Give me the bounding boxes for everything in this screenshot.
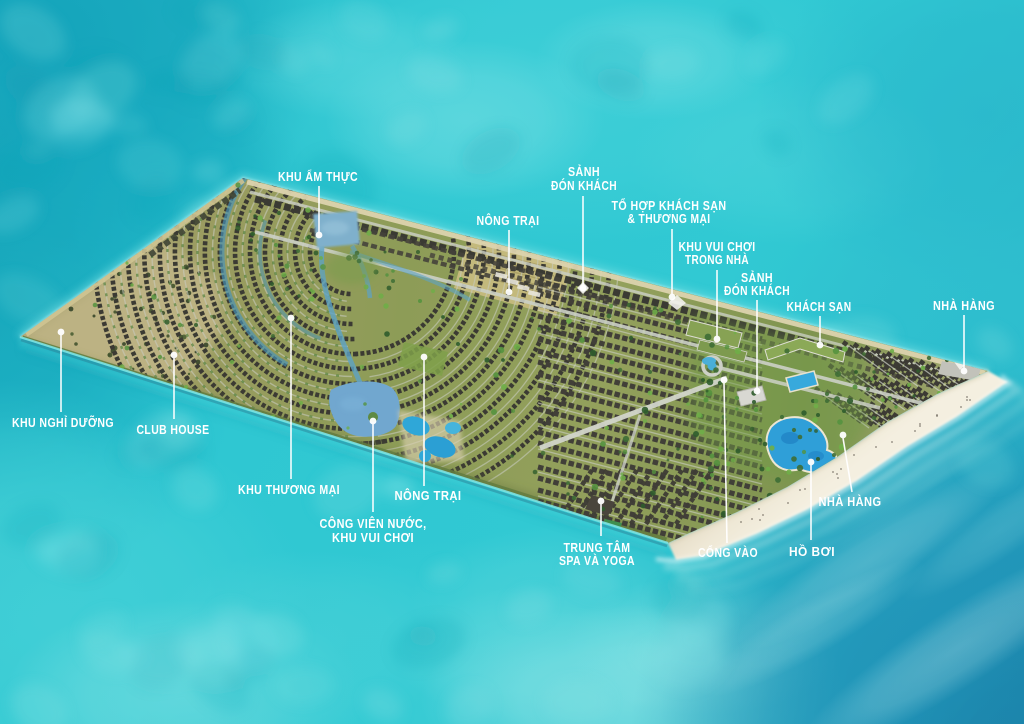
svg-text:KHU ẨM THỰC: KHU ẨM THỰC [278, 169, 358, 184]
svg-text:CÔNG VIÊN NƯỚC,: CÔNG VIÊN NƯỚC, [320, 516, 427, 531]
svg-text:HỒ BƠI: HỒ BƠI [789, 544, 835, 559]
svg-text:KHÁCH SẠN: KHÁCH SẠN [787, 299, 852, 314]
svg-text:CỔNG VÀO: CỔNG VÀO [698, 545, 758, 560]
svg-text:SẢNH: SẢNH [568, 164, 600, 179]
svg-text:KHU NGHỈ DƯỠNG: KHU NGHỈ DƯỠNG [12, 415, 114, 430]
svg-text:SPA VÀ YOGA: SPA VÀ YOGA [559, 553, 635, 568]
svg-text:ĐÓN KHÁCH: ĐÓN KHÁCH [724, 283, 790, 298]
svg-text:ĐÓN KHÁCH: ĐÓN KHÁCH [551, 178, 617, 193]
svg-text:CLUB HOUSE: CLUB HOUSE [137, 422, 210, 437]
svg-text:NÔNG TRẠI: NÔNG TRẠI [395, 488, 462, 503]
svg-text:NHÀ HÀNG: NHÀ HÀNG [819, 494, 882, 509]
svg-text:KHU THƯƠNG MẠI: KHU THƯƠNG MẠI [238, 482, 340, 497]
svg-text:NÔNG TRẠI: NÔNG TRẠI [477, 213, 540, 228]
svg-text:NHÀ HÀNG: NHÀ HÀNG [933, 298, 995, 313]
svg-text:& THƯƠNG MẠI: & THƯƠNG MẠI [628, 211, 711, 226]
svg-text:TRONG NHÀ: TRONG NHÀ [685, 252, 749, 267]
svg-text:KHU VUI CHƠI: KHU VUI CHƠI [332, 530, 414, 545]
